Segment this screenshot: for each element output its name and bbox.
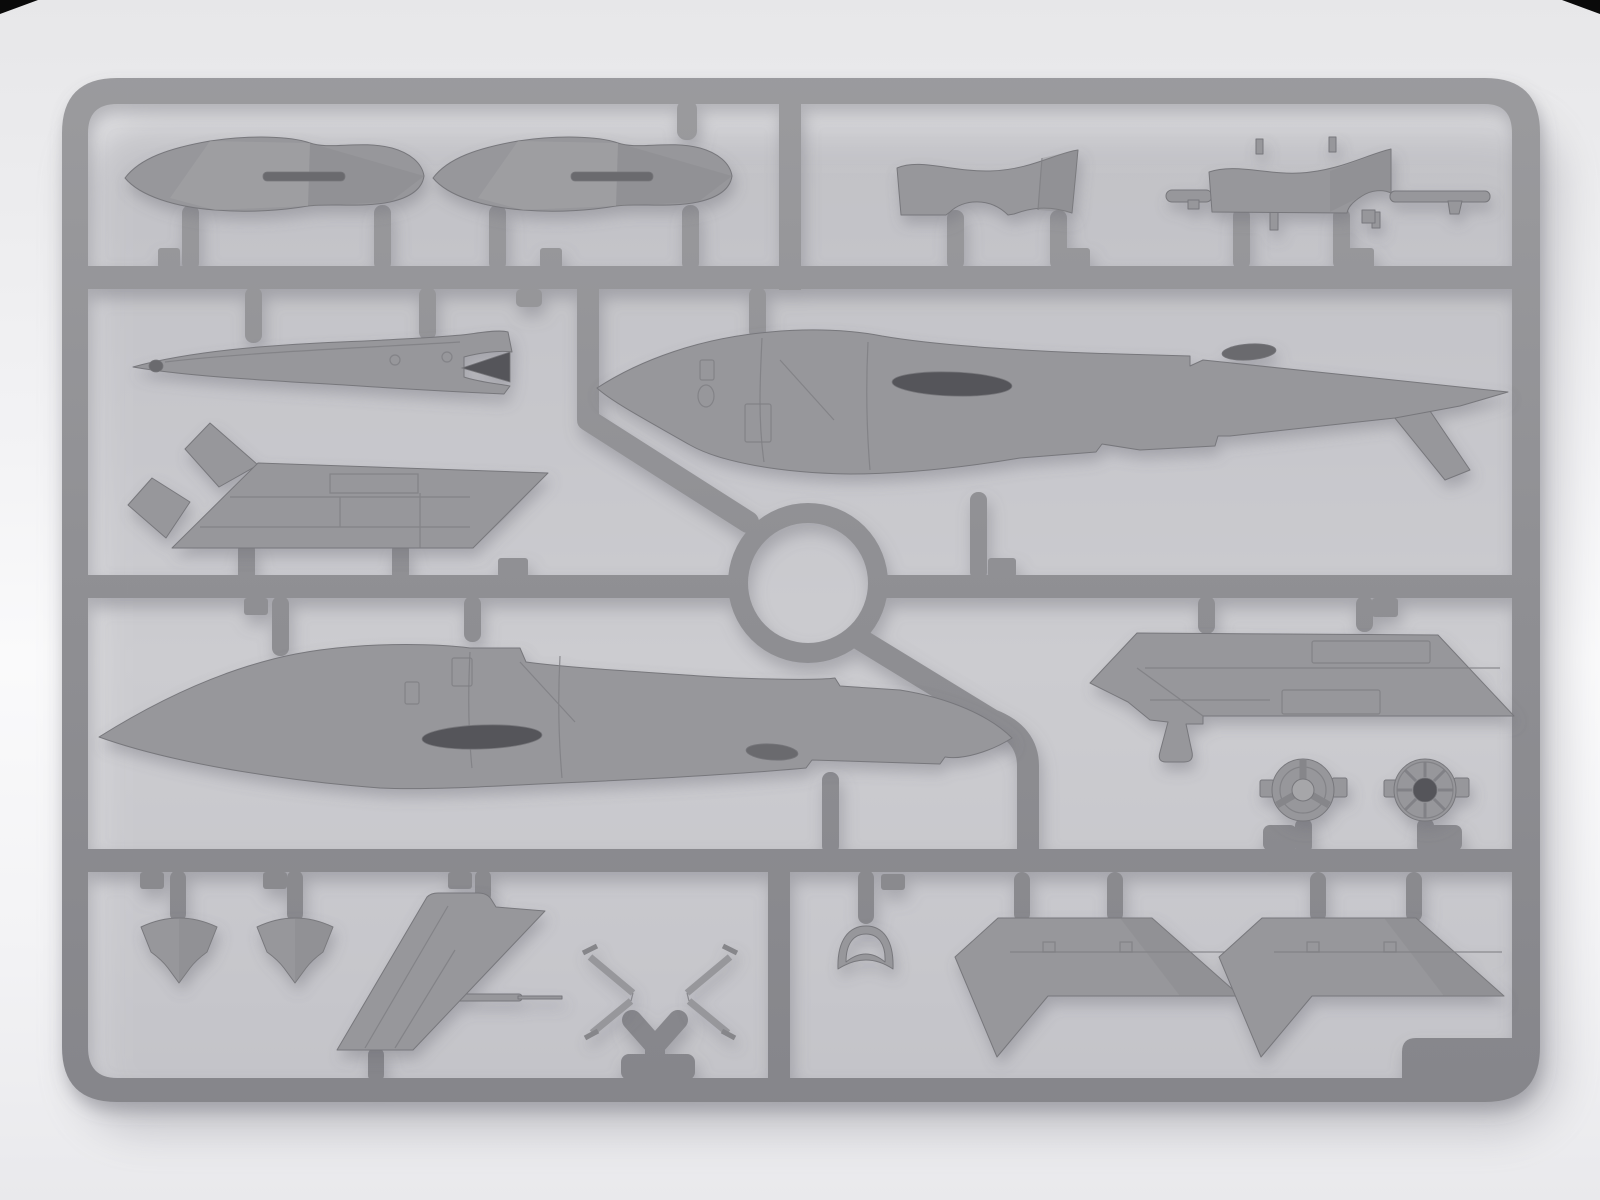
corner-pad	[1402, 1038, 1518, 1080]
gate-tab	[1372, 598, 1398, 617]
gate	[419, 287, 436, 340]
corner-mark-right	[1562, 0, 1600, 14]
gate	[245, 287, 262, 343]
divider-top	[779, 100, 801, 290]
gate	[238, 543, 255, 581]
gate-tab	[516, 289, 542, 307]
gate	[858, 870, 874, 924]
rail-middle-left	[86, 575, 736, 598]
corner-mark-left	[0, 0, 38, 14]
gate	[489, 205, 506, 271]
gate	[970, 492, 987, 580]
gate-tab	[1064, 248, 1090, 270]
divider-bottom	[768, 868, 790, 1080]
sprue-scene	[0, 0, 1600, 1200]
gate	[272, 596, 289, 656]
gate-tab	[988, 558, 1016, 577]
gate-foot	[1428, 825, 1462, 851]
gate-tab	[448, 872, 472, 889]
gate	[1014, 872, 1030, 922]
gate	[1233, 208, 1250, 270]
rail-bottom	[86, 849, 1512, 872]
gate	[1333, 208, 1350, 270]
gate	[182, 205, 199, 271]
gate	[1406, 872, 1422, 922]
gate	[947, 210, 964, 270]
gate-tab	[498, 558, 528, 577]
gate	[682, 205, 699, 271]
gate-tab	[158, 248, 180, 268]
gate	[1356, 596, 1373, 632]
gate	[749, 287, 766, 339]
gate	[464, 596, 481, 642]
gate	[1107, 872, 1123, 922]
sprue-photo	[0, 0, 1600, 1200]
gate	[287, 870, 303, 922]
gate	[1198, 596, 1215, 634]
gate-foot	[1263, 825, 1297, 851]
gate	[374, 205, 391, 271]
gate	[1310, 872, 1326, 922]
gate-tab	[1348, 248, 1374, 270]
gate-tab	[140, 872, 164, 889]
gate	[392, 543, 409, 581]
gate	[368, 1048, 384, 1082]
gate-tab	[263, 872, 287, 889]
gate	[170, 870, 186, 922]
gate	[822, 772, 839, 854]
gate-tab	[881, 874, 905, 890]
y-runner-pad	[621, 1054, 695, 1080]
gate	[1295, 818, 1312, 854]
gate-tab	[244, 598, 268, 615]
hanging-stub	[677, 100, 697, 140]
gate-tab	[540, 248, 562, 268]
